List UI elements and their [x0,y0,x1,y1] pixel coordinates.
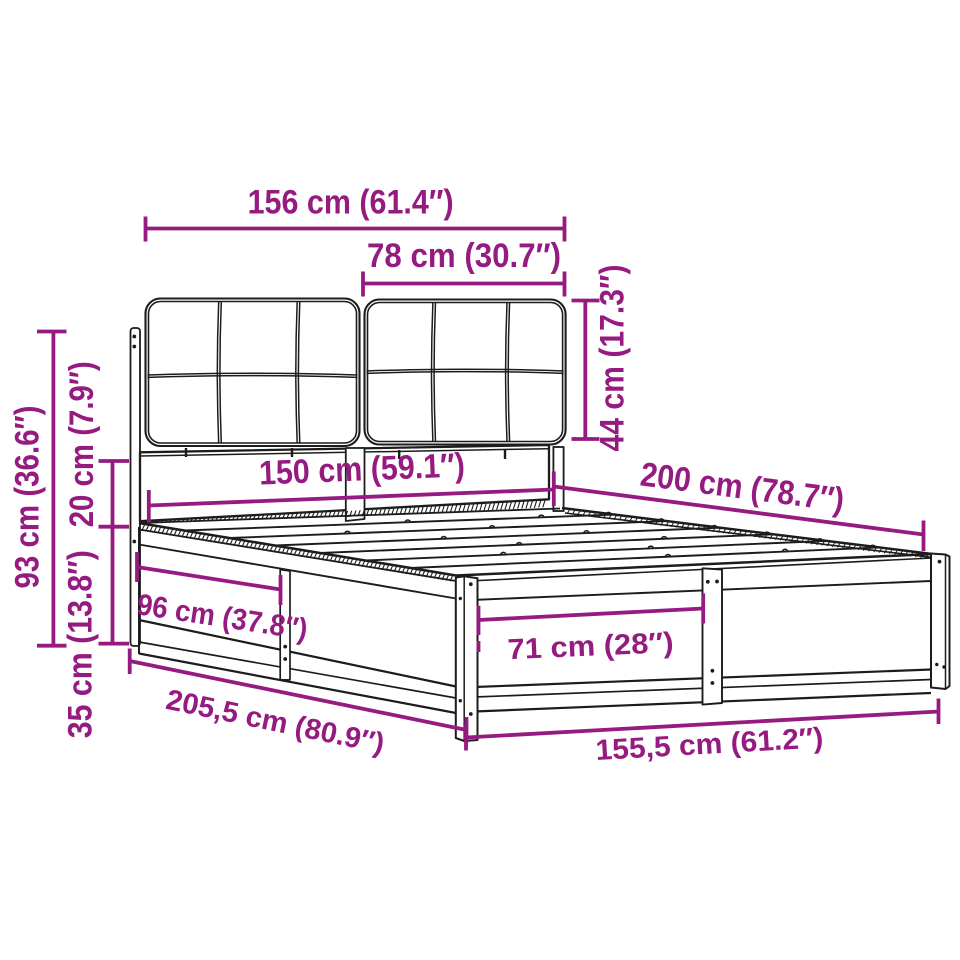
svg-text:20 cm (7.9″): 20 cm (7.9″) [63,361,101,527]
svg-text:93 cm (36.6″): 93 cm (36.6″) [8,406,46,589]
svg-text:44 cm (17.3″): 44 cm (17.3″) [593,265,631,452]
svg-text:156 cm (61.4″): 156 cm (61.4″) [248,183,454,221]
svg-text:78 cm (30.7″): 78 cm (30.7″) [367,237,561,275]
svg-text:35 cm (13.8″): 35 cm (13.8″) [61,550,99,738]
